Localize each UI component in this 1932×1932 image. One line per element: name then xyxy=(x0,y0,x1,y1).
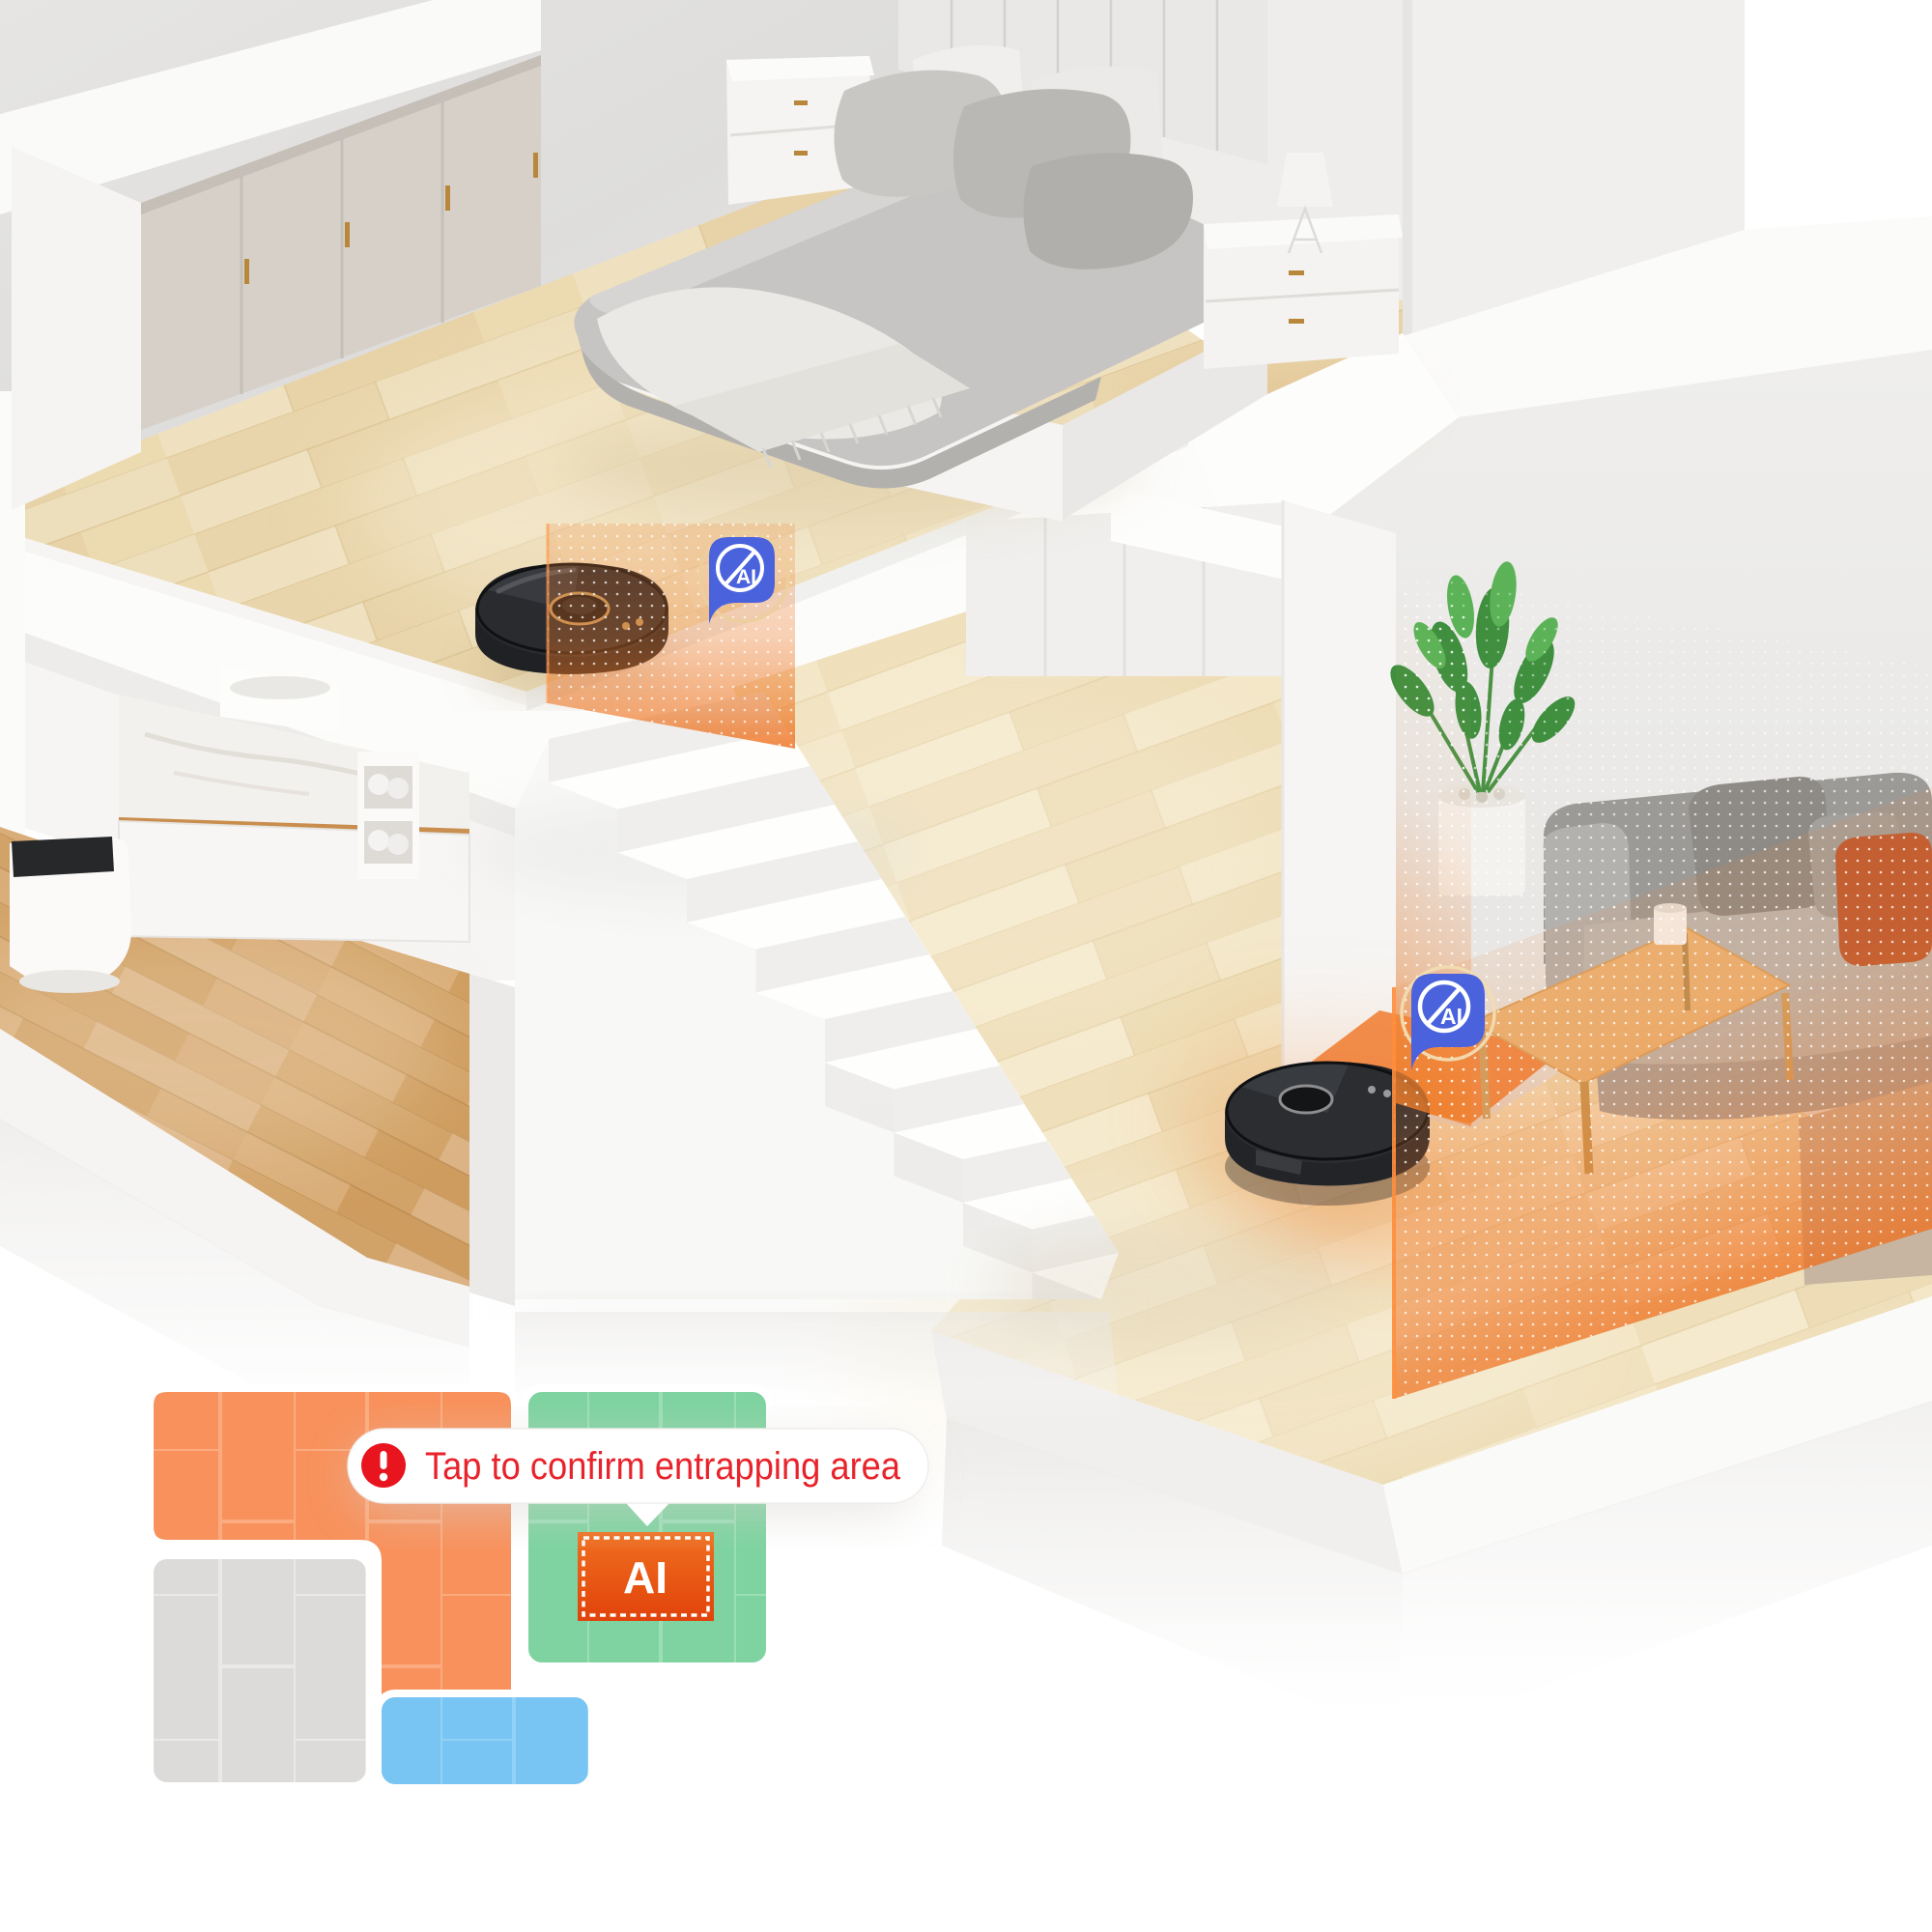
svg-text:AI: AI xyxy=(1440,1004,1463,1029)
svg-text:AI: AI xyxy=(623,1552,668,1603)
svg-text:Tap to confirm entrapping area: Tap to confirm entrapping area xyxy=(425,1445,901,1488)
svg-text:AI: AI xyxy=(736,566,756,588)
